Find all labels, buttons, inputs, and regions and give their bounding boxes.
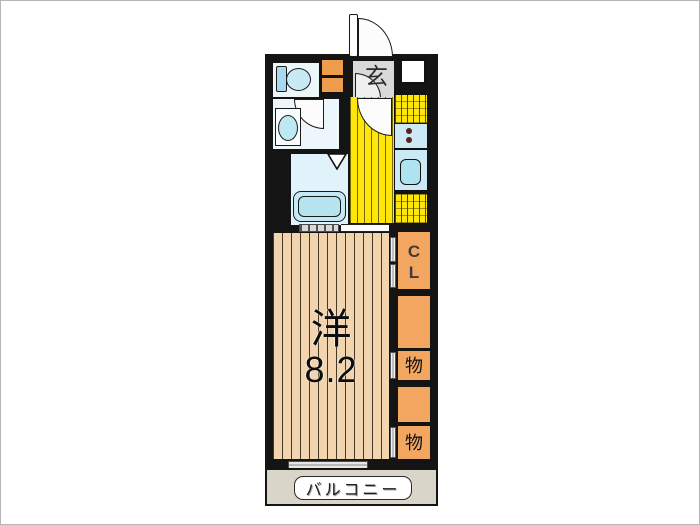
storage-sliding-door-marker <box>390 352 396 379</box>
bathroom <box>291 154 348 225</box>
closet-cl: C L <box>398 232 430 289</box>
toilet-bowl-icon <box>286 68 311 91</box>
stove-burner-icon <box>406 128 412 134</box>
pipe-space-box <box>399 58 427 85</box>
bathtub-icon <box>293 191 346 222</box>
closet-sliding-door-marker <box>390 264 396 288</box>
storage-lower-section <box>398 387 430 422</box>
main-room-kanji: 洋 <box>311 308 352 351</box>
sink-counter <box>394 149 428 191</box>
main-room-label: 洋 8.2 <box>281 293 381 403</box>
bathtub-inner <box>298 196 341 217</box>
main-room: 洋 8.2 <box>273 233 389 459</box>
bath-door-fold-icon <box>327 153 347 170</box>
washroom <box>273 99 339 149</box>
room-doorway-marker <box>341 224 389 232</box>
balcony-label-box: バルコニー <box>294 476 412 500</box>
entrance-label: 玄 <box>365 65 388 88</box>
main-room-size: 8.2 <box>304 351 357 389</box>
storage-back-label: 物 <box>398 426 430 452</box>
balcony: バルコニー <box>265 468 438 506</box>
stove-burner-icon <box>406 137 412 143</box>
closet-label-l: L <box>398 262 430 283</box>
toilet-room <box>273 63 319 97</box>
kitchen-storage-space <box>394 193 428 224</box>
shoe-cabinet-upper <box>321 59 344 76</box>
balcony-label: バルコニー <box>306 476 401 500</box>
kitchen-sink-icon <box>400 159 421 185</box>
storage-front: 物 <box>398 351 430 380</box>
refrigerator-space <box>394 94 428 124</box>
floor-plan-image: 玄 洋 8.2 <box>0 0 700 525</box>
storage-front-label: 物 <box>398 351 430 375</box>
closet-sliding-door-marker <box>390 237 396 262</box>
storage-sliding-door-marker <box>390 427 396 458</box>
stove-counter <box>394 123 428 149</box>
storage-back: 物 <box>398 426 430 459</box>
bathroom-window-icon <box>299 224 339 232</box>
washbasin-icon <box>278 115 298 141</box>
closet-label-c: C <box>398 241 430 262</box>
shoe-cabinet-lower <box>321 77 344 93</box>
entrance-hall: 玄 <box>353 61 394 99</box>
entrance-door-arc-icon <box>358 18 393 57</box>
entrance-door-leaf-icon <box>349 14 358 57</box>
storage-upper-section <box>398 296 430 348</box>
